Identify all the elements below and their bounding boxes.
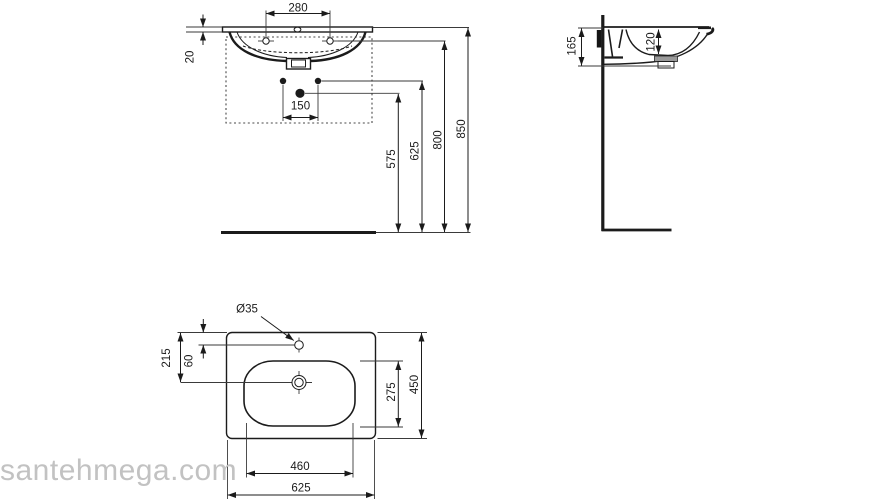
side-view: 165 120 — [567, 15, 713, 231]
dim-label-625-width: 625 — [291, 483, 310, 495]
rear-boss-right-line — [619, 30, 623, 49]
tap-hole-front — [294, 27, 301, 32]
dim-label-20: 20 — [185, 51, 197, 64]
fixing-hole-right — [327, 38, 333, 44]
drain-trap-side — [658, 62, 674, 69]
waste-outlet-point — [295, 89, 304, 98]
dim-label-d35: Ø35 — [236, 304, 258, 316]
dim-label-215: 215 — [161, 348, 173, 367]
bowl-inner-right — [308, 32, 358, 58]
dim-label-60: 60 — [184, 355, 196, 368]
dim-label-165: 165 — [567, 36, 579, 55]
supply-point-right — [315, 78, 321, 84]
front-view: 280 20 150 — [185, 3, 471, 233]
washbasin-dimension-drawing: 280 20 150 — [0, 0, 880, 500]
bowl-inner-left — [237, 32, 287, 58]
dim-rear-to-tap: 60 — [184, 319, 204, 367]
dim-label-275: 275 — [386, 382, 398, 401]
supply-point-left — [280, 78, 286, 84]
dim-label-625-height: 625 — [410, 141, 422, 160]
technical-drawing-page: 280 20 150 — [0, 0, 880, 500]
dim-rear-to-drain: 215 — [161, 333, 181, 382]
dim-label-460: 460 — [290, 461, 309, 473]
dim-label-800: 800 — [433, 130, 445, 149]
tap-hole-plan — [295, 341, 304, 350]
dim-bowl-width: 460 — [247, 423, 354, 478]
fixing-hole-left — [263, 38, 269, 44]
dim-label-150: 150 — [291, 101, 310, 113]
drain-plan — [181, 371, 313, 394]
fixing-holes — [258, 38, 338, 44]
watermark: santehmega.com — [0, 454, 237, 488]
dim-bowl-depth: 120 — [646, 30, 659, 55]
dim-label-850: 850 — [456, 119, 468, 138]
dim-bowl-front-back: 275 — [360, 361, 403, 427]
wall-bracket — [597, 30, 602, 48]
dim-overall-depth: 450 — [378, 333, 428, 439]
rear-boss-left-line — [609, 30, 613, 57]
dim-tap-hole-diameter: Ø35 — [236, 304, 294, 341]
dim-label-575: 575 — [386, 149, 398, 168]
dim-label-280: 280 — [288, 3, 307, 15]
dim-rim-thickness: 20 — [185, 15, 223, 64]
dim-label-120: 120 — [646, 32, 658, 51]
drain-flange-side — [655, 56, 678, 62]
dim-label-450: 450 — [409, 375, 421, 394]
bowl-outline-plan — [244, 361, 355, 426]
